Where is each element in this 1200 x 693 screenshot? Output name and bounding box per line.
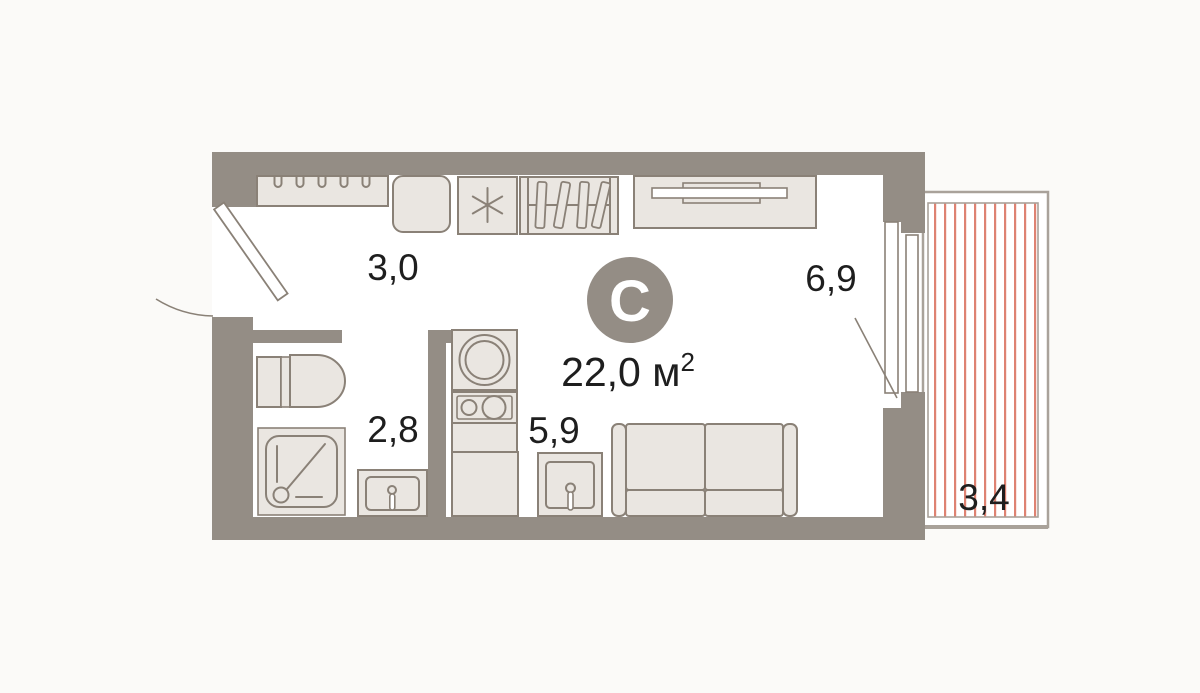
wall-right-bottom-stub bbox=[901, 392, 925, 408]
wall-bathroom-right bbox=[428, 330, 446, 517]
kitchen-counter bbox=[452, 423, 518, 516]
wall-bottom bbox=[212, 517, 925, 540]
hanger-icon bbox=[577, 182, 589, 229]
wall-right-top-stub bbox=[901, 222, 925, 233]
entrance-door-swing-arc bbox=[156, 299, 213, 316]
wall-bathroom-top bbox=[253, 330, 342, 343]
bathroom-sink bbox=[358, 470, 427, 516]
wall-top-left-jamb bbox=[212, 152, 257, 207]
faucet-stem bbox=[568, 492, 573, 510]
fridge bbox=[458, 177, 517, 234]
toilet-bowl bbox=[290, 355, 345, 407]
total-area-label: 22,0 м2 bbox=[561, 347, 695, 395]
tv-console bbox=[634, 176, 816, 228]
tv-screen bbox=[652, 188, 787, 198]
washing-machine bbox=[452, 330, 517, 390]
label-living-area: 6,9 bbox=[805, 258, 856, 299]
toilet-tank-divider bbox=[281, 357, 290, 407]
sofa-armrest bbox=[783, 424, 797, 516]
label-hallway-area: 3,0 bbox=[367, 247, 418, 288]
washing-machine-body bbox=[452, 330, 517, 390]
coat-rack bbox=[257, 176, 388, 206]
counter-upper bbox=[452, 423, 517, 452]
studio-logo: С bbox=[587, 257, 673, 343]
floor-plan: С 22,0 м2 3,0 2,8 5,9 6,9 3,4 bbox=[0, 0, 1200, 693]
wall-right-bottom bbox=[883, 408, 925, 540]
sofa-seat bbox=[626, 424, 705, 490]
wall-left-lower bbox=[212, 317, 253, 540]
wall-right-top bbox=[883, 152, 925, 222]
sofa-back bbox=[705, 490, 783, 516]
logo-letter: С bbox=[609, 269, 651, 334]
cabinet bbox=[393, 176, 450, 232]
faucet-stem bbox=[390, 494, 395, 510]
label-balcony-area: 3,4 bbox=[958, 477, 1009, 518]
kitchen-sink bbox=[538, 453, 602, 516]
sofa-back bbox=[626, 490, 705, 516]
sofa-armrest bbox=[612, 424, 626, 516]
toilet-tank bbox=[257, 357, 281, 407]
balcony-hatch-area bbox=[928, 203, 1038, 517]
hanger-icon bbox=[535, 182, 546, 228]
label-bathroom-area: 2,8 bbox=[367, 409, 418, 450]
balcony-door-frame bbox=[885, 222, 898, 393]
counter-lower bbox=[452, 452, 518, 516]
wall-top bbox=[212, 152, 925, 175]
floor-plan-drawing: С 22,0 м2 3,0 2,8 5,9 6,9 3,4 bbox=[0, 0, 1200, 693]
sofa bbox=[612, 424, 797, 516]
wardrobe bbox=[520, 177, 618, 234]
coat-rack-shelf bbox=[257, 176, 388, 206]
label-kitchen-area: 5,9 bbox=[528, 410, 579, 451]
stove bbox=[452, 392, 517, 423]
shower bbox=[258, 428, 345, 515]
window-glazing bbox=[906, 235, 918, 392]
sofa-seat bbox=[705, 424, 783, 490]
toilet bbox=[257, 355, 345, 407]
